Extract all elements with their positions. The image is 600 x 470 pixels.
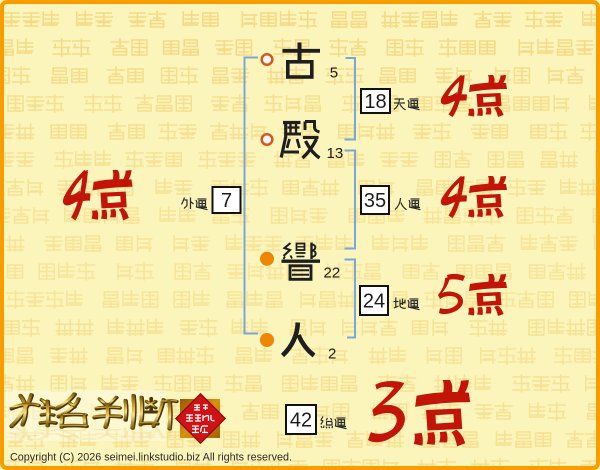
svg-text:Copyright (C) 2026 seimei.link: Copyright (C) 2026 seimei.linkstudio.biz… [10,452,292,464]
svg-text:7: 7 [221,190,232,212]
svg-text:18: 18 [364,91,386,113]
svg-text:35: 35 [364,190,386,212]
svg-text:2: 2 [328,345,336,362]
svg-text:22: 22 [324,264,341,281]
svg-text:42: 42 [290,410,312,432]
svg-text:13: 13 [327,145,344,162]
svg-text:24: 24 [363,291,385,313]
svg-text:5: 5 [330,65,338,82]
